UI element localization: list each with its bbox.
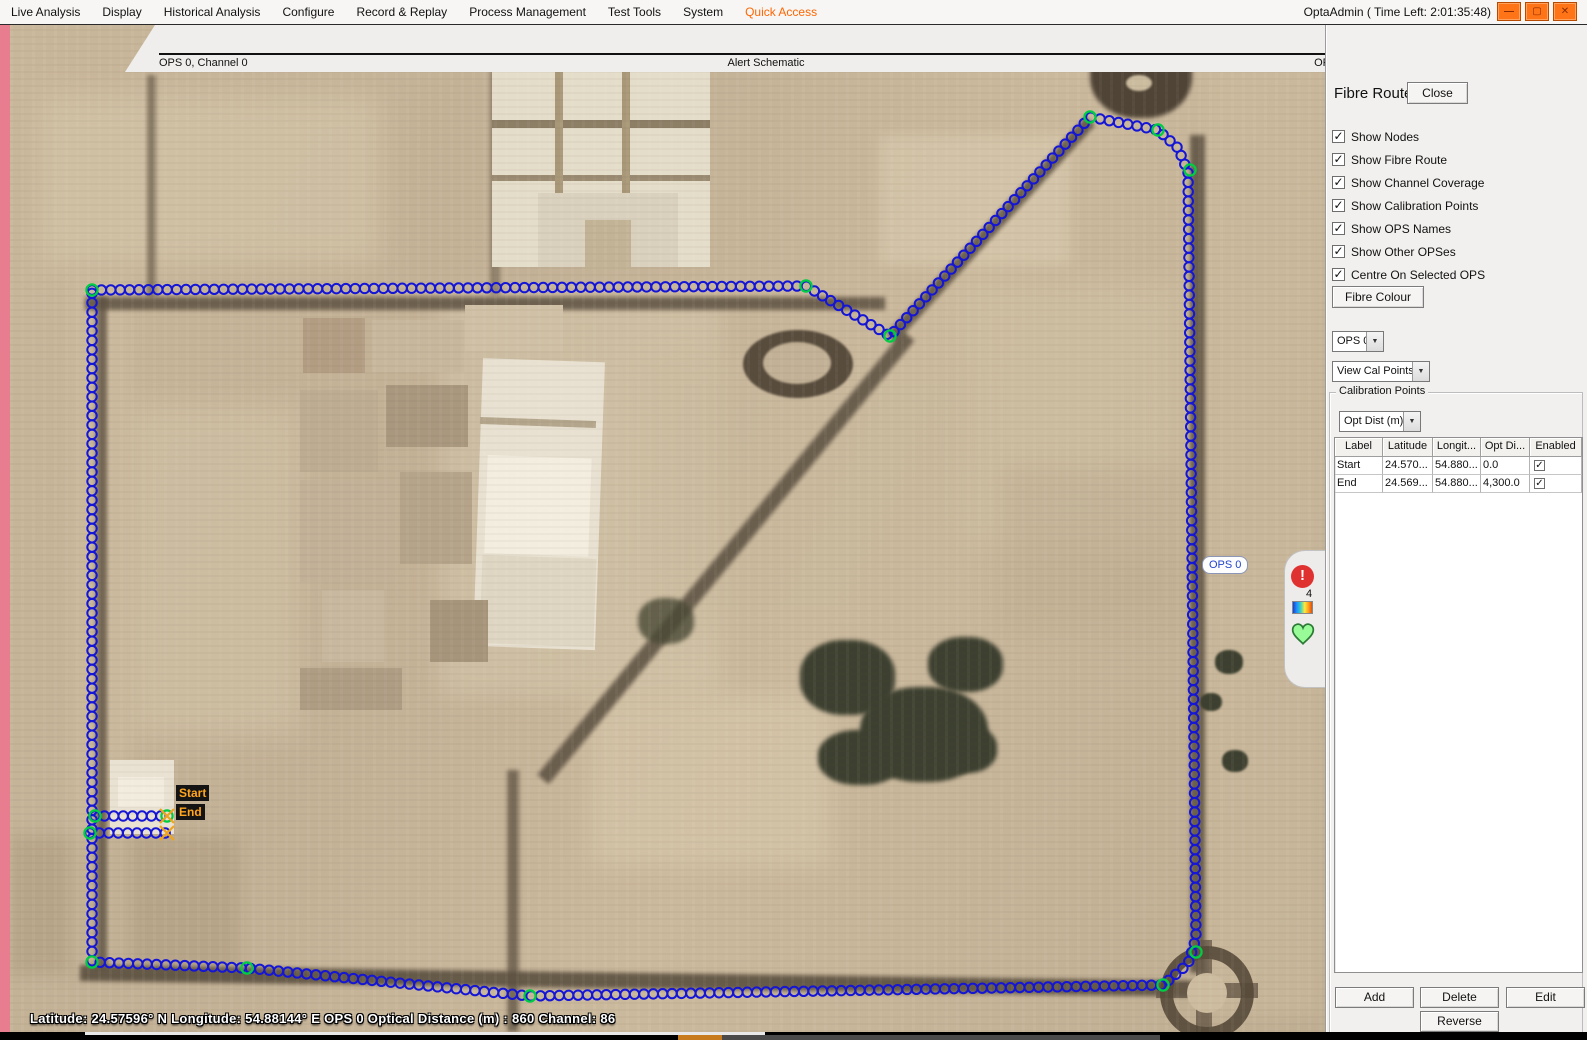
close-icon[interactable]: ✕ <box>1553 2 1577 21</box>
start-calibration-label: Start <box>176 785 209 801</box>
table-header-row: LabelLatitudeLongit...Opt Di...Enabled <box>1335 438 1582 457</box>
menu-item-configure[interactable]: Configure <box>271 0 345 24</box>
table-cell: End <box>1335 475 1383 493</box>
alert-icon[interactable]: ! <box>1291 565 1314 588</box>
waterfall-thumbnail-icon[interactable] <box>1292 601 1313 614</box>
checkbox-show-nodes[interactable]: ✓Show Nodes <box>1332 125 1582 148</box>
chevron-down-icon[interactable]: ▼ <box>1366 332 1383 351</box>
ops-select[interactable]: OPS 0 ▼ <box>1332 331 1384 352</box>
checkbox-label: Show Channel Coverage <box>1351 176 1484 190</box>
edit-button[interactable]: Edit <box>1506 987 1585 1008</box>
checkbox-icon[interactable]: ✓ <box>1332 153 1345 166</box>
menu-item-system[interactable]: System <box>672 0 734 24</box>
taskbar-app-icon <box>678 1035 722 1040</box>
calibration-points-table[interactable]: LabelLatitudeLongit...Opt Di...EnabledSt… <box>1334 437 1583 973</box>
checkbox-label: Show Nodes <box>1351 130 1419 144</box>
app-title-timer: OptaAdmin ( Time Left: 2:01:35:48) <box>1304 0 1491 24</box>
maximize-icon[interactable]: ▢ <box>1525 2 1549 21</box>
calibration-points-title: Calibration Points <box>1336 385 1428 397</box>
checkbox-label: Show OPS Names <box>1351 222 1451 236</box>
table-cell: 54.880... <box>1433 475 1481 493</box>
enabled-checkbox-icon[interactable]: ✓ <box>1534 478 1545 489</box>
map-canvas[interactable] <box>10 25 1325 1032</box>
menu-item-display[interactable]: Display <box>91 0 152 24</box>
minimize-icon[interactable]: — <box>1497 2 1521 21</box>
chevron-down-icon[interactable]: ▼ <box>1412 362 1429 381</box>
add-button[interactable]: Add <box>1335 987 1414 1008</box>
menu-bar: Live AnalysisDisplayHistorical AnalysisC… <box>0 0 1587 25</box>
alert-count-badge: 4 <box>1306 588 1312 600</box>
opt-dist-value: Opt Dist (m) <box>1344 415 1403 427</box>
view-cal-points-select[interactable]: View Cal Points ▼ <box>1332 361 1430 382</box>
checkbox-label: Show Calibration Points <box>1351 199 1478 213</box>
chevron-down-icon[interactable]: ▼ <box>1403 412 1420 431</box>
map-texture <box>10 25 1325 1032</box>
table-cell: 24.569... <box>1383 475 1433 493</box>
enabled-checkbox-icon[interactable]: ✓ <box>1534 460 1545 471</box>
close-button[interactable]: Close <box>1407 82 1468 104</box>
checkbox-show-channel-coverage[interactable]: ✓Show Channel Coverage <box>1332 171 1582 194</box>
alert-flyout: ! 4 <box>1284 550 1326 688</box>
view-cal-points-value: View Cal Points <box>1337 365 1414 377</box>
optaadmin-window: OPS 0 Start End Latitude: 24.57596° N Lo… <box>0 0 1587 1040</box>
panel-title: Fibre Route <box>1334 85 1412 102</box>
display-options-list: ✓Show Nodes✓Show Fibre Route✓Show Channe… <box>1332 125 1582 286</box>
taskbar-highlight <box>85 1032 765 1035</box>
menu-item-historical-analysis[interactable]: Historical Analysis <box>153 0 272 24</box>
checkbox-show-fibre-route[interactable]: ✓Show Fibre Route <box>1332 148 1582 171</box>
taskbar-segment <box>722 1035 1160 1040</box>
ops-map-label[interactable]: OPS 0 <box>1202 556 1248 574</box>
column-header: Enabled <box>1530 438 1582 457</box>
column-header: Opt Di... <box>1481 438 1530 457</box>
checkbox-show-other-opses[interactable]: ✓Show Other OPSes <box>1332 240 1582 263</box>
delete-button[interactable]: Delete <box>1420 987 1499 1008</box>
checkbox-icon[interactable]: ✓ <box>1332 176 1345 189</box>
taskbar-sliver <box>0 1032 1587 1040</box>
column-header: Label <box>1335 438 1383 457</box>
checkbox-label: Show Other OPSes <box>1351 245 1456 259</box>
checkbox-icon[interactable]: ✓ <box>1332 199 1345 212</box>
checkbox-show-calibration-points[interactable]: ✓Show Calibration Points <box>1332 194 1582 217</box>
checkbox-icon[interactable]: ✓ <box>1332 222 1345 235</box>
checkbox-centre-on-selected-ops[interactable]: ✓Centre On Selected OPS <box>1332 263 1582 286</box>
checkbox-label: Show Fibre Route <box>1351 153 1447 167</box>
calibration-points-group: Calibration Points Opt Dist (m) ▼ LabelL… <box>1329 392 1583 1037</box>
end-calibration-label: End <box>176 804 205 820</box>
fibre-route-panel: Fibre Route Close ✓Show Nodes✓Show Fibre… <box>1325 25 1587 1032</box>
checkbox-icon[interactable]: ✓ <box>1332 130 1345 143</box>
ops-select-value: OPS 0 <box>1337 335 1369 347</box>
health-heart-icon[interactable] <box>1290 621 1316 647</box>
table-cell: Start <box>1335 457 1383 475</box>
opt-dist-select[interactable]: Opt Dist (m) ▼ <box>1339 411 1421 432</box>
menu-item-test-tools[interactable]: Test Tools <box>597 0 672 24</box>
map-edge-strip <box>0 25 10 1032</box>
table-cell: 0.0 <box>1481 457 1530 475</box>
checkbox-show-ops-names[interactable]: ✓Show OPS Names <box>1332 217 1582 240</box>
table-cell: 24.570... <box>1383 457 1433 475</box>
table-cell: 4,300.0 <box>1481 475 1530 493</box>
checkbox-label: Centre On Selected OPS <box>1351 268 1485 282</box>
map-status-readout: Latitude: 24.57596° N Longitude: 54.8814… <box>30 1011 615 1026</box>
table-cell: 54.880... <box>1433 457 1481 475</box>
reverse-button[interactable]: Reverse <box>1420 1011 1499 1032</box>
menu-item-live-analysis[interactable]: Live Analysis <box>0 0 91 24</box>
schematic-fibre-line <box>159 53 1417 55</box>
column-header: Longit... <box>1433 438 1481 457</box>
schematic-title: Alert Schematic <box>115 57 1417 69</box>
menu-item-quick-access[interactable]: Quick Access <box>734 0 828 24</box>
window-controls: — ▢ ✕ <box>1497 2 1577 21</box>
table-row[interactable]: End24.569...54.880...4,300.0✓ <box>1335 475 1582 493</box>
checkbox-icon[interactable]: ✓ <box>1332 245 1345 258</box>
checkbox-icon[interactable]: ✓ <box>1332 268 1345 281</box>
column-header: Latitude <box>1383 438 1433 457</box>
menu-items: Live AnalysisDisplayHistorical AnalysisC… <box>0 0 828 24</box>
enabled-cell: ✓ <box>1530 475 1582 493</box>
menu-item-record-replay[interactable]: Record & Replay <box>345 0 458 24</box>
enabled-cell: ✓ <box>1530 457 1582 475</box>
menu-item-process-management[interactable]: Process Management <box>458 0 597 24</box>
fibre-colour-button[interactable]: Fibre Colour <box>1332 286 1424 308</box>
table-row[interactable]: Start24.570...54.880...0.0✓ <box>1335 457 1582 475</box>
